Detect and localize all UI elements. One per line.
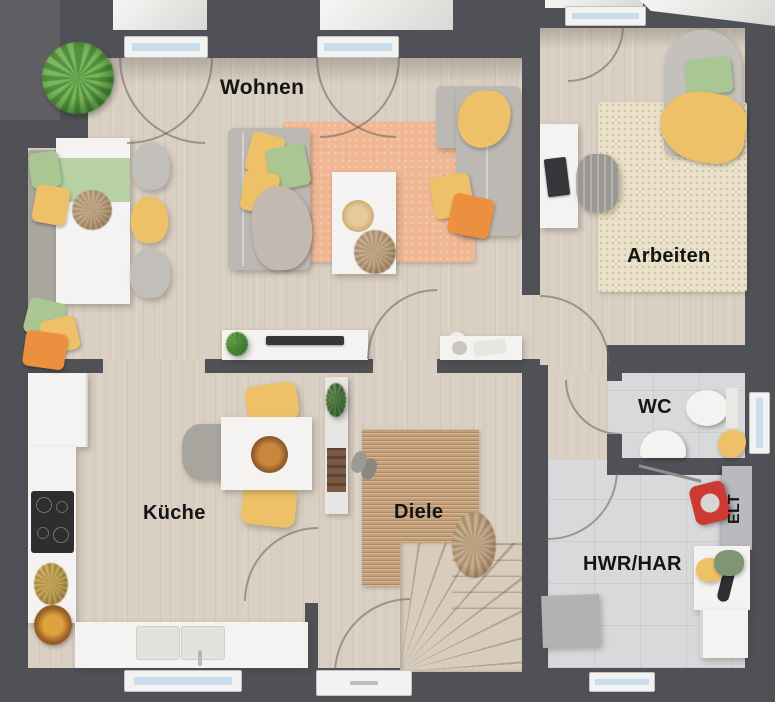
- deco-round: [452, 341, 467, 355]
- faucet: [198, 650, 202, 666]
- cooktop: [31, 491, 74, 553]
- terrace-slab: [113, 0, 207, 30]
- window-glass: [756, 398, 763, 448]
- room-label-wc: WC: [638, 396, 672, 419]
- room-label-hallway: Diele: [394, 501, 443, 524]
- window-office: [565, 6, 646, 26]
- wall-left-lower: [0, 120, 28, 668]
- room-label-office: Arbeiten: [627, 245, 711, 268]
- laundry-shelf: [694, 546, 750, 610]
- fruit-bowl: [34, 605, 72, 645]
- floor-pillow-orange: [22, 329, 69, 370]
- dining-chair: [132, 142, 170, 190]
- table-centerpiece: [72, 190, 112, 230]
- window-glass: [572, 13, 638, 19]
- dining-chair-yellow: [131, 197, 168, 243]
- laundry-green: [714, 550, 744, 576]
- office-chair: [576, 154, 620, 212]
- wall-wc-left-b: [607, 434, 622, 460]
- sideboard-plant: [226, 332, 248, 356]
- wall-shelf: [325, 377, 348, 514]
- fridge: [28, 373, 88, 447]
- vase-dried-plant: [354, 230, 396, 274]
- window-glass: [324, 43, 391, 50]
- toilet: [686, 390, 728, 426]
- tv-sideboard: [222, 330, 368, 360]
- monitor: [544, 157, 570, 197]
- room-label-kitchen: Küche: [143, 502, 206, 525]
- wall-tv: [205, 359, 373, 373]
- window-utility: [589, 672, 655, 692]
- potted-plant: [42, 42, 114, 114]
- window-glass: [132, 43, 201, 50]
- utility-box: [541, 594, 601, 648]
- sofa-pillow-orange: [446, 192, 495, 240]
- room-label-electrical: ELT: [726, 479, 744, 539]
- dining-chair: [130, 248, 170, 298]
- hallway-dried-plant: [452, 512, 496, 578]
- room-label-utility: HWR/HAR: [583, 553, 682, 576]
- dining-table: [56, 138, 130, 304]
- coffee-table: [332, 172, 396, 274]
- small-sideboard: [440, 336, 522, 360]
- bench-pillow-yellow: [31, 183, 71, 226]
- salad-bowl: [251, 436, 288, 473]
- wall-divider-office: [522, 28, 540, 295]
- window-living-1: [124, 36, 208, 58]
- shelf-plant: [326, 383, 346, 417]
- kitchen-counter-bottom: [75, 622, 308, 668]
- sink-basin-left: [136, 626, 180, 660]
- washing-machine: [700, 610, 748, 658]
- desk: [540, 124, 578, 228]
- room-label-living: Wohnen: [220, 76, 304, 100]
- entrance-door: [316, 670, 412, 696]
- door-handle: [350, 681, 378, 686]
- tv-screen: [266, 336, 344, 345]
- window-living-2: [317, 36, 399, 58]
- floorplan: Wohnen Arbeiten Küche Diele WC HWR/HAR E…: [0, 0, 775, 702]
- daybed-pillow-green: [684, 56, 734, 97]
- window-glass: [134, 677, 231, 684]
- shelf-books: [327, 448, 346, 492]
- window-glass: [595, 679, 649, 685]
- serving-tray: [342, 200, 374, 232]
- toilet-tank: [726, 388, 738, 428]
- kitchen-chair-yellow-bottom: [240, 483, 298, 528]
- window-wc: [749, 392, 770, 454]
- window-kitchen: [124, 670, 242, 692]
- terrace-slab: [320, 0, 453, 30]
- sink-basin-right: [181, 626, 225, 660]
- kitchen-table: [221, 417, 312, 490]
- deco-item: [473, 338, 507, 357]
- wall-office-south: [607, 345, 775, 373]
- counter-flowers: [34, 563, 68, 605]
